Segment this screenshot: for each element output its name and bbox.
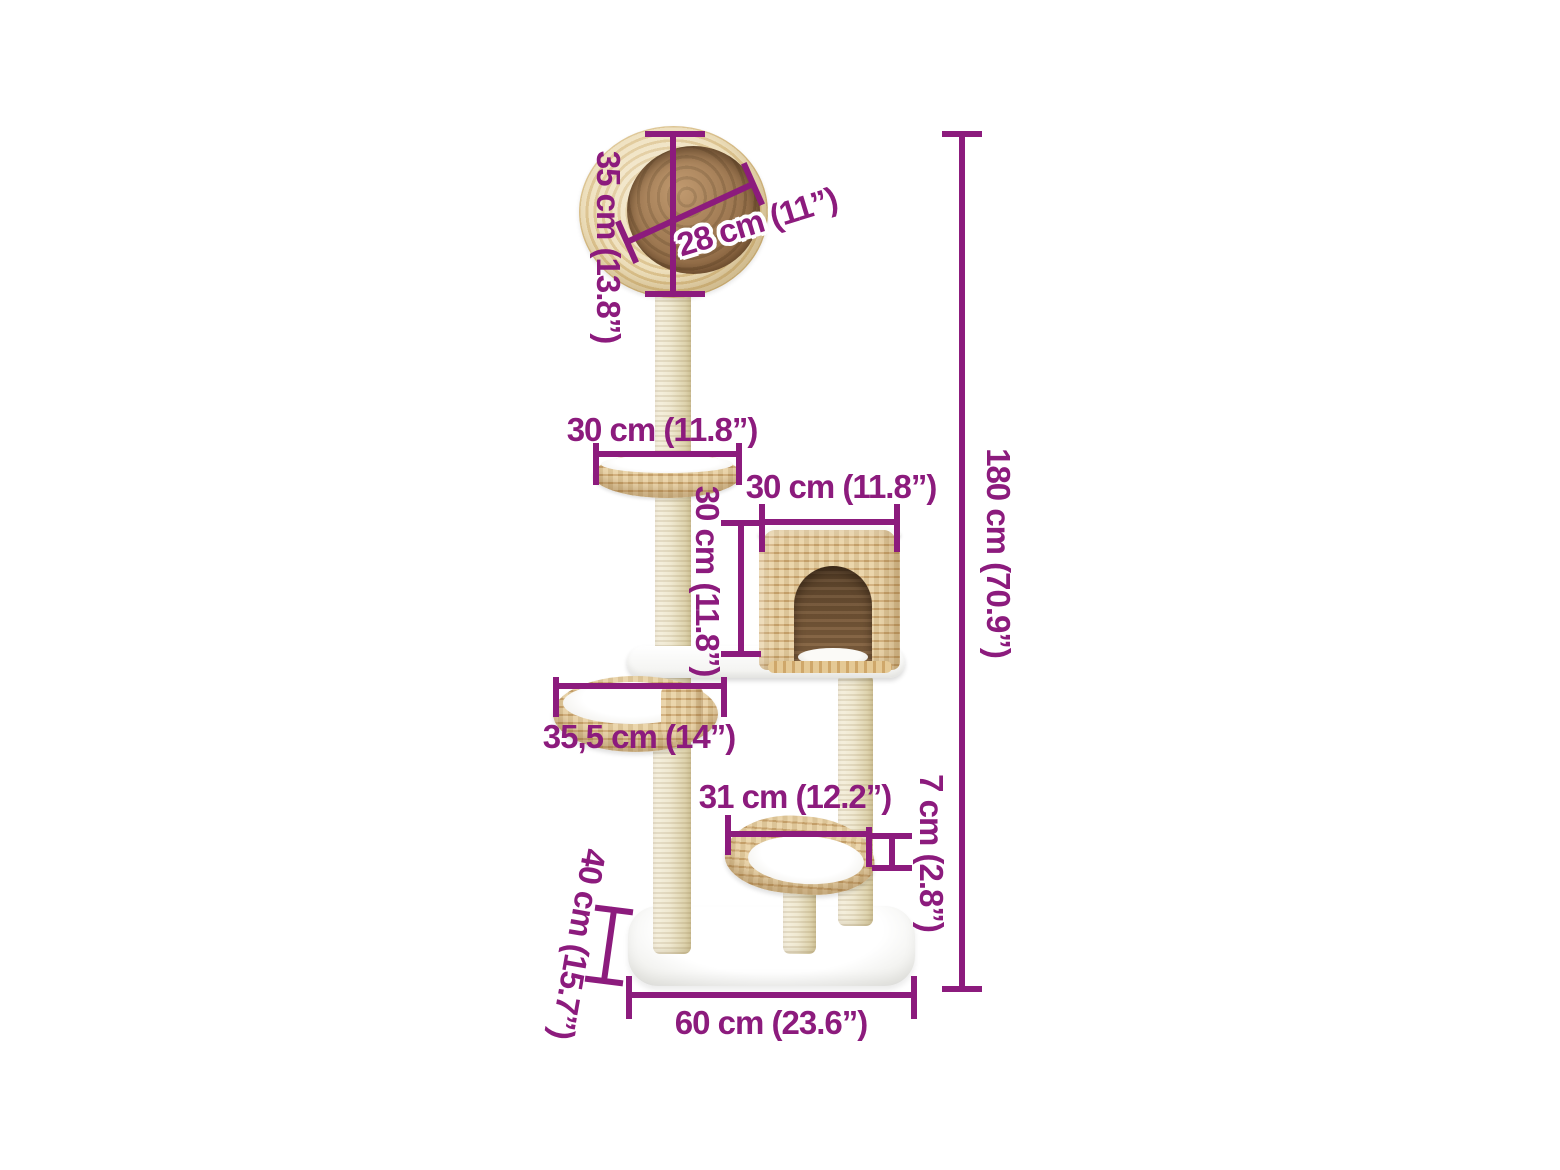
dim-label-house-width: 30 cm (11.8”) — [746, 468, 937, 506]
dim-label-low-bed-width: 31 cm (12.2”) — [699, 778, 891, 816]
dim-line-total-height — [945, 134, 979, 989]
dim-label-ball-height: 35 cm (13.8”) — [589, 151, 627, 343]
scratching-post-basket-support — [783, 886, 816, 954]
dim-label-bowl-bed-width: 35,5 cm (14”) — [543, 718, 735, 756]
dim-label-base-depth: 40 cm (15.7”) — [543, 846, 614, 1042]
dim-line-low-bed-height — [875, 836, 909, 868]
product-dimension-diagram: 35 cm (13.8”) 28 cm (11”) 30 cm (11.8”) … — [0, 0, 1560, 1170]
dim-label-low-bed-height: 7 cm (2.8”) — [912, 774, 950, 932]
cat-house-fringe — [768, 661, 892, 673]
dim-label-total-height: 180 cm (70.9”) — [979, 448, 1017, 658]
dim-label-tray-bed-width: 30 cm (11.8”) — [567, 411, 758, 449]
dim-label-house-height: 30 cm (11.8”) — [688, 486, 726, 677]
tray-bed-cushion — [601, 455, 733, 473]
dim-line-house-height — [724, 523, 758, 654]
dim-label-base-width: 60 cm (23.6”) — [675, 1004, 867, 1042]
